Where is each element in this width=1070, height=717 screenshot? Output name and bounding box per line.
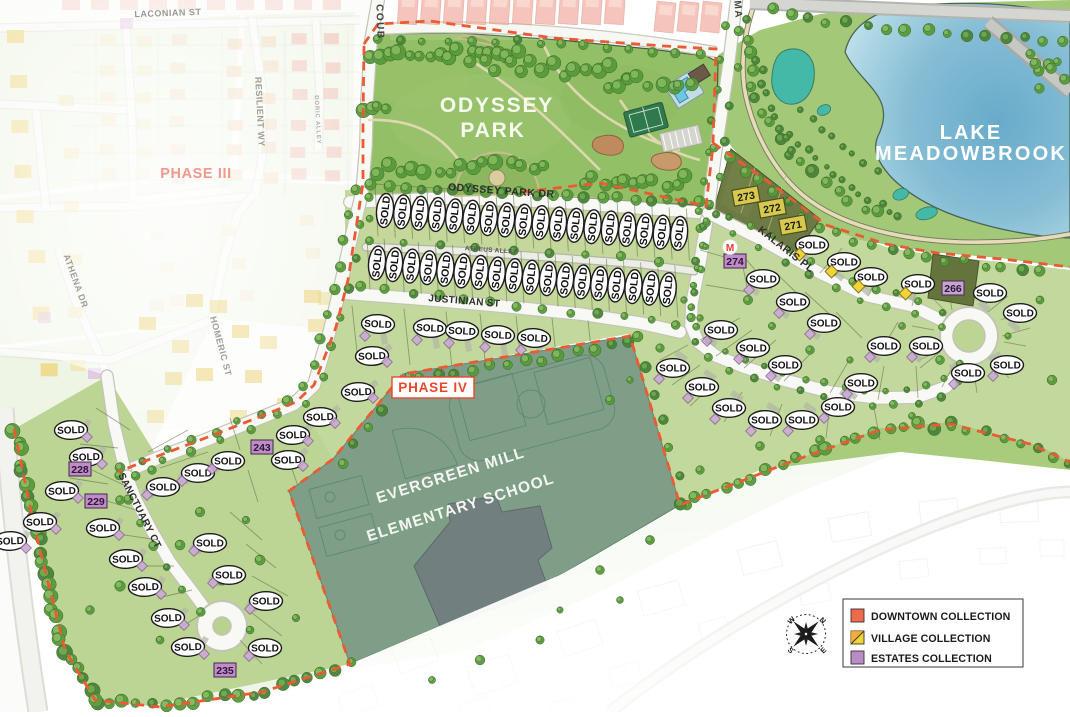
svg-text:SOLD: SOLD <box>358 351 386 363</box>
svg-text:SOLD: SOLD <box>788 415 816 426</box>
svg-text:235: 235 <box>216 665 234 677</box>
svg-text:SOLD: SOLD <box>344 387 372 399</box>
svg-text:SOLD: SOLD <box>751 415 779 426</box>
svg-text:SOLD: SOLD <box>252 596 280 607</box>
svg-text:SOLD: SOLD <box>57 425 85 437</box>
svg-text:MEADOWBROOK: MEADOWBROOK <box>875 143 1067 165</box>
svg-text:SOLD: SOLD <box>364 319 392 331</box>
svg-text:SOLD: SOLD <box>904 279 932 290</box>
svg-text:SOLD: SOLD <box>739 343 767 354</box>
svg-text:SOLD: SOLD <box>112 554 140 566</box>
svg-text:SOLD: SOLD <box>520 333 548 345</box>
svg-text:SOLD: SOLD <box>484 330 512 342</box>
svg-text:MA: MA <box>731 0 744 19</box>
svg-text:SOLD: SOLD <box>89 523 117 535</box>
svg-text:SOLD: SOLD <box>279 430 307 442</box>
svg-text:SOLD: SOLD <box>416 323 444 335</box>
svg-text:SOLD: SOLD <box>154 613 182 625</box>
svg-text:229: 229 <box>87 496 105 508</box>
svg-text:228: 228 <box>71 464 89 476</box>
svg-text:LAKE: LAKE <box>940 122 1002 144</box>
svg-text:243: 243 <box>253 442 271 454</box>
svg-text:SOLD: SOLD <box>659 363 687 374</box>
svg-text:DOWNTOWN COLLECTION: DOWNTOWN COLLECTION <box>871 611 1010 623</box>
svg-text:SOLD: SOLD <box>1006 308 1034 319</box>
svg-text:SOLD: SOLD <box>688 382 716 393</box>
svg-text:SOLD: SOLD <box>857 272 885 283</box>
svg-text:SOLD: SOLD <box>0 536 24 548</box>
svg-text:SOLD: SOLD <box>274 455 302 467</box>
svg-text:M: M <box>726 243 734 254</box>
svg-text:ESTATES COLLECTION: ESTATES COLLECTION <box>871 653 992 665</box>
svg-text:SOLD: SOLD <box>749 274 777 285</box>
svg-text:SOLD: SOLD <box>976 288 1004 299</box>
svg-text:SOLD: SOLD <box>824 402 852 413</box>
svg-text:PARK: PARK <box>460 119 525 142</box>
svg-text:SOLD: SOLD <box>715 403 743 414</box>
svg-text:SOLD: SOLD <box>448 326 476 338</box>
svg-text:SOLD: SOLD <box>306 412 334 424</box>
svg-text:PHASE IV: PHASE IV <box>398 380 467 395</box>
svg-text:SOLD: SOLD <box>251 643 279 654</box>
svg-text:SOLD: SOLD <box>993 360 1021 371</box>
svg-text:SOLD: SOLD <box>830 257 858 268</box>
svg-text:SOLD: SOLD <box>771 360 799 371</box>
svg-text:VILLAGE COLLECTION: VILLAGE COLLECTION <box>871 633 991 645</box>
svg-text:SOLD: SOLD <box>174 642 202 654</box>
svg-text:266: 266 <box>944 283 962 295</box>
svg-text:SOLD: SOLD <box>48 486 76 498</box>
svg-text:SOLD: SOLD <box>870 341 898 352</box>
svg-text:SOLD: SOLD <box>131 582 159 594</box>
svg-text:ODYSSEY: ODYSSEY <box>440 94 554 117</box>
svg-text:SOLD: SOLD <box>215 570 243 581</box>
svg-text:SOLD: SOLD <box>798 240 826 251</box>
svg-text:SOLD: SOLD <box>149 482 177 493</box>
svg-text:COUB: COUB <box>373 4 385 40</box>
svg-text:SOLD: SOLD <box>954 368 982 379</box>
svg-text:SOLD: SOLD <box>214 456 242 467</box>
svg-text:SOLD: SOLD <box>810 318 838 329</box>
svg-text:274: 274 <box>726 256 744 268</box>
svg-text:SOLD: SOLD <box>847 378 875 389</box>
svg-text:SOLD: SOLD <box>196 538 224 549</box>
svg-text:SOLD: SOLD <box>779 297 807 308</box>
svg-text:PHASE III: PHASE III <box>160 166 231 182</box>
svg-text:SOLD: SOLD <box>26 517 54 529</box>
svg-text:SOLD: SOLD <box>912 341 940 352</box>
svg-text:SOLD: SOLD <box>707 325 735 336</box>
